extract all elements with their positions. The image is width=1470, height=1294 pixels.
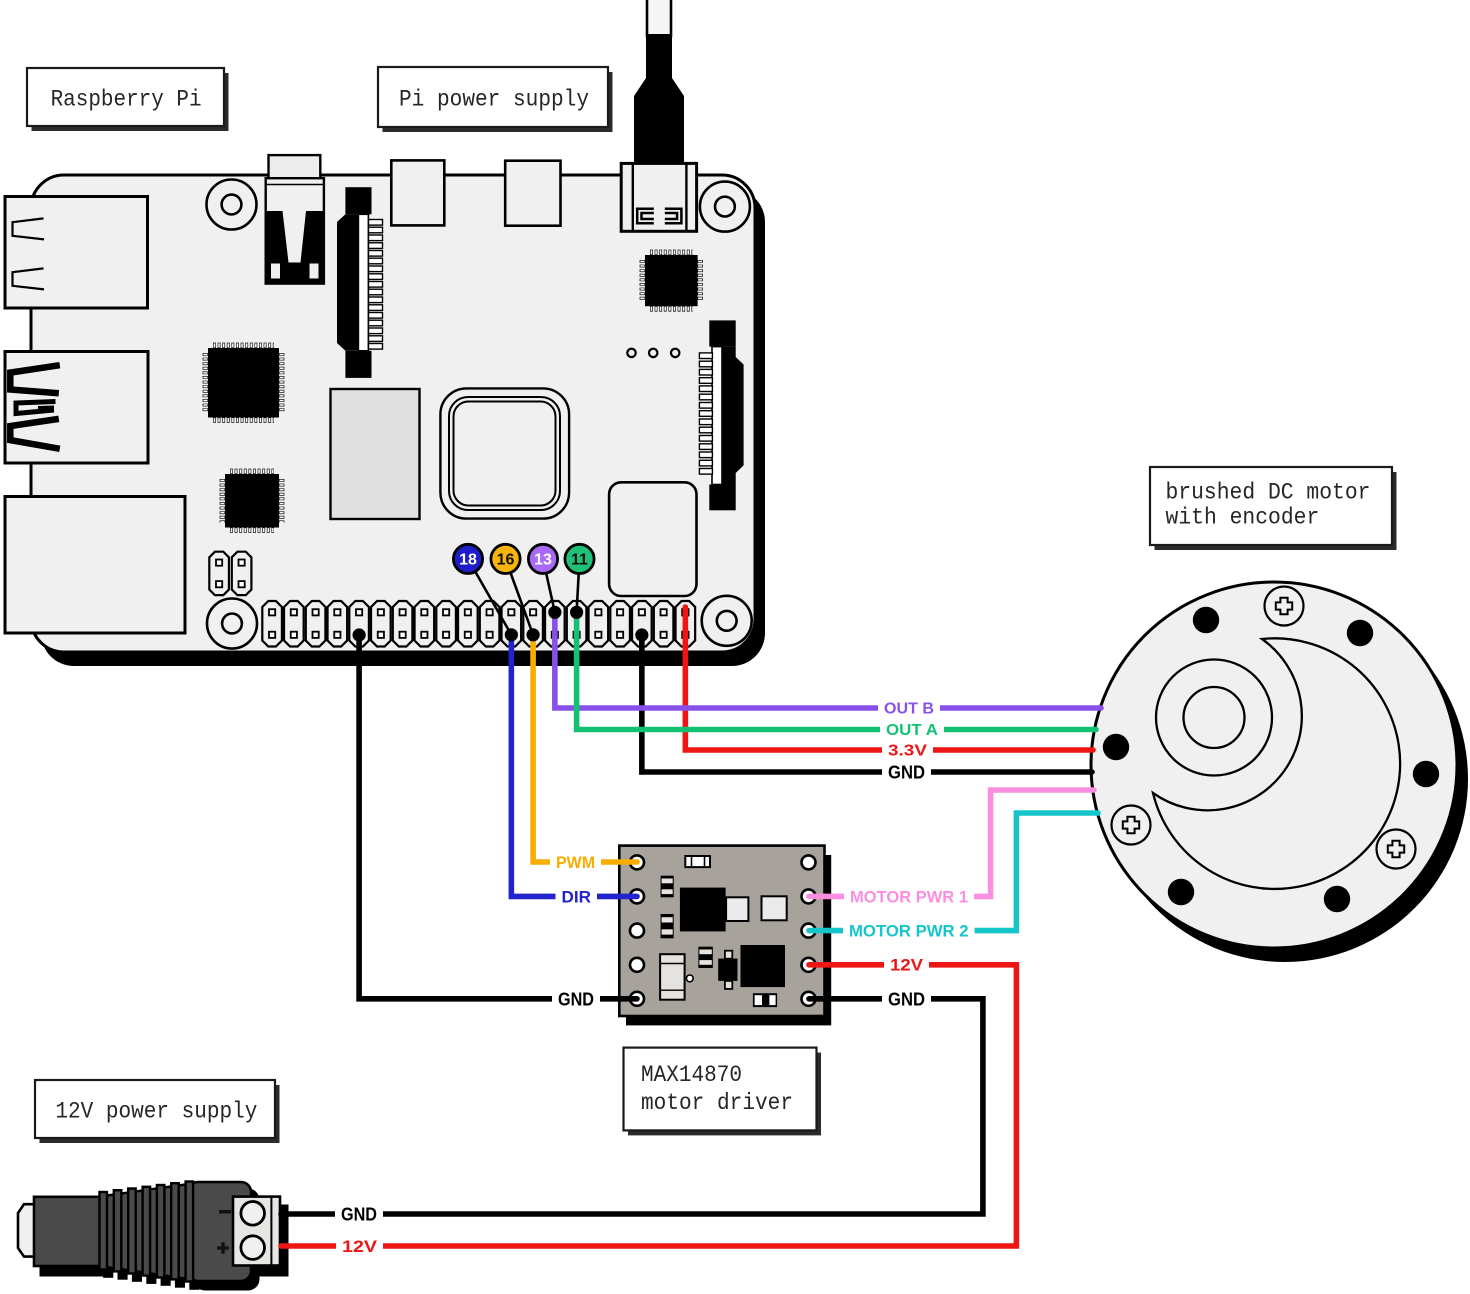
svg-text:brushed DC motor: brushed DC motor xyxy=(1166,479,1371,505)
svg-text:16: 16 xyxy=(497,552,515,569)
svg-text:GND: GND xyxy=(558,988,594,1009)
svg-text:PWM: PWM xyxy=(556,854,595,872)
svg-text:Raspberry Pi: Raspberry Pi xyxy=(51,87,202,113)
svg-text:MOTOR PWR 1: MOTOR PWR 1 xyxy=(850,888,968,906)
svg-text:18: 18 xyxy=(459,552,477,569)
svg-text:OUT B: OUT B xyxy=(884,701,934,718)
svg-text:Pi power supply: Pi power supply xyxy=(399,87,589,113)
svg-text:with encoder: with encoder xyxy=(1166,504,1320,530)
svg-text:GND: GND xyxy=(888,988,925,1009)
svg-text:12V power supply: 12V power supply xyxy=(55,1098,257,1124)
svg-text:motor driver: motor driver xyxy=(641,1090,793,1116)
svg-text:GND: GND xyxy=(341,1204,377,1225)
svg-text:12V: 12V xyxy=(342,1238,377,1256)
svg-text:3.3V: 3.3V xyxy=(888,743,927,760)
svg-text:MAX14870: MAX14870 xyxy=(641,1062,742,1088)
svg-text:OUT A: OUT A xyxy=(886,722,938,739)
svg-text:DIR: DIR xyxy=(562,888,592,906)
svg-text:12V: 12V xyxy=(890,957,923,975)
svg-text:MOTOR PWR 2: MOTOR PWR 2 xyxy=(849,923,969,941)
svg-text:GND: GND xyxy=(888,762,925,783)
svg-text:11: 11 xyxy=(571,552,588,569)
svg-text:13: 13 xyxy=(534,552,552,569)
